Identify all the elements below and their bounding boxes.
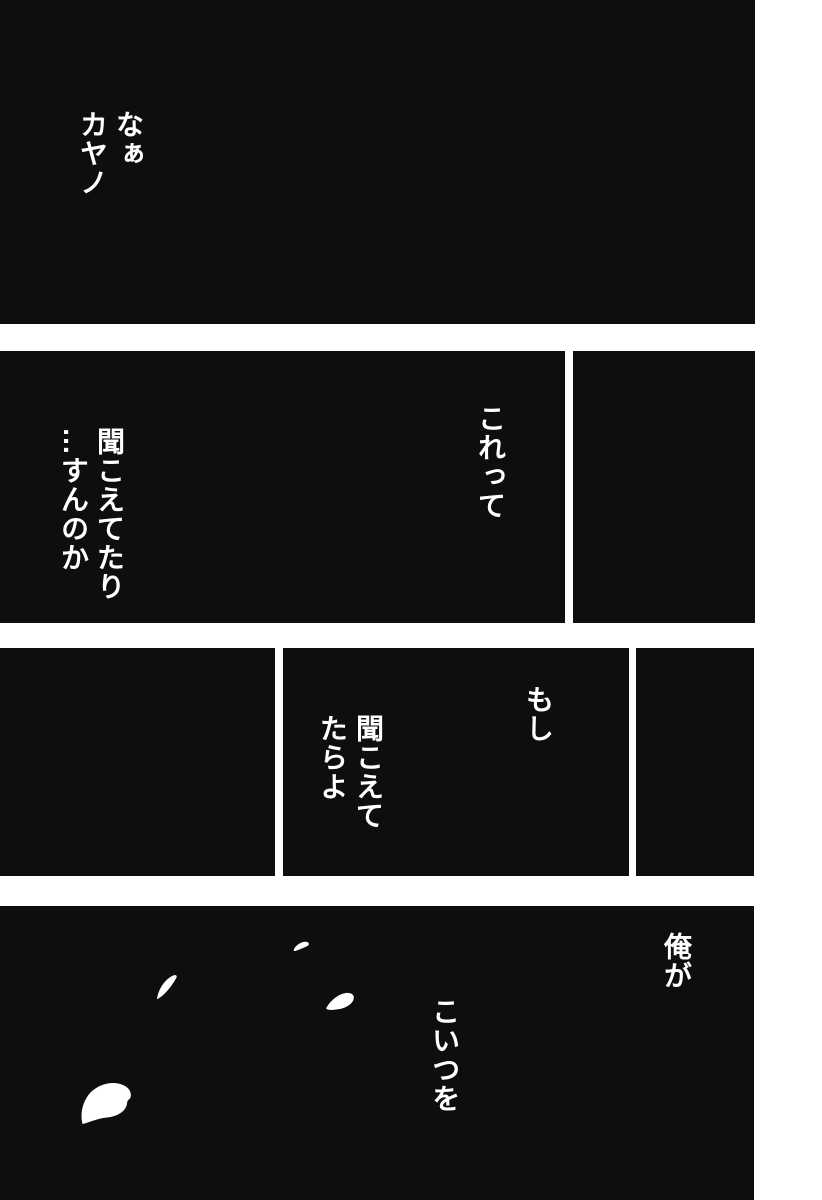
dialogue-line: 聞こえてたり [91,427,127,601]
dialogue-line: 聞こえて [350,714,386,830]
manga-page: なぁ カヤノ これって 聞こえてたり …すんのか もし 聞こえて たらよ 俺が … [0,0,822,1200]
petal-icon [156,974,179,1000]
dialogue-line: …すんのか [55,427,91,601]
dialogue-line: もし [520,685,556,743]
manga-panel-4: 俺が こいつを [0,906,754,1200]
dialogue-3: 聞こえてたり …すんのか [55,427,127,601]
manga-panel-1: なぁ カヤノ [0,0,755,324]
dialogue-6: 俺が [658,932,694,990]
manga-panel-3a [0,648,275,876]
dialogue-2: これって [472,404,508,520]
dialogue-line: なぁ [110,110,146,197]
dialogue-line: こいつを [426,997,462,1113]
dialogue-line: 俺が [658,932,694,990]
dialogue-line: たらよ [314,714,350,830]
dialogue-7: こいつを [426,997,462,1113]
petal-icon [79,1082,137,1126]
petal-icon [293,940,311,952]
manga-panel-3b: もし 聞こえて たらよ [283,648,629,876]
dialogue-1: なぁ カヤノ [74,110,146,197]
dialogue-line: カヤノ [74,110,110,197]
dialogue-line: これって [472,404,508,520]
dialogue-5: 聞こえて たらよ [314,714,386,830]
manga-panel-3c [636,648,754,876]
dialogue-4: もし [520,685,556,743]
manga-panel-2b [573,351,755,623]
petal-icon [324,992,356,1012]
manga-panel-2a: これって 聞こえてたり …すんのか [0,351,565,623]
